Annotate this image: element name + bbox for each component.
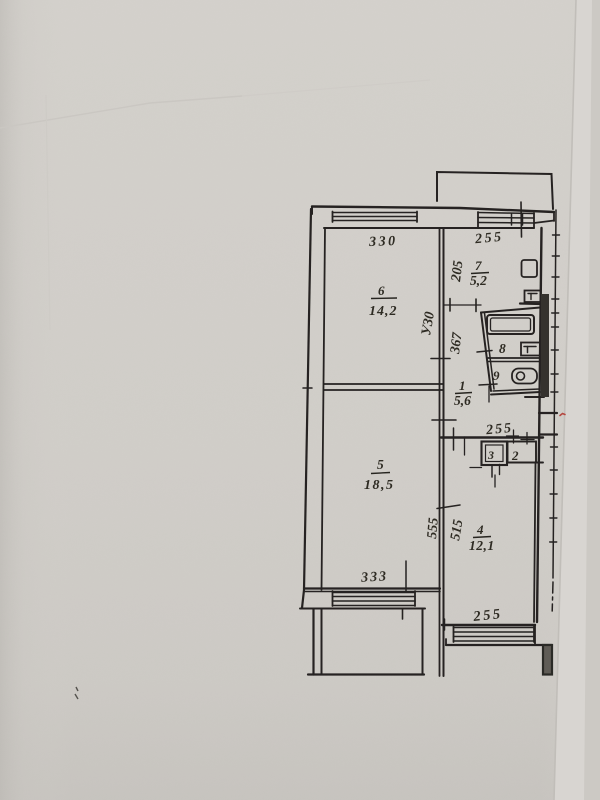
svg-text:4: 4: [476, 522, 484, 537]
svg-text:14,2: 14,2: [369, 304, 398, 319]
svg-text:9: 9: [493, 368, 500, 383]
svg-text:255: 255: [485, 421, 514, 438]
svg-text:205: 205: [449, 260, 467, 284]
svg-text:1: 1: [459, 378, 466, 393]
svg-text:255: 255: [474, 230, 505, 248]
svg-text:5,6: 5,6: [454, 393, 471, 408]
svg-text:12,1: 12,1: [469, 538, 495, 553]
svg-text:6: 6: [378, 283, 385, 298]
svg-text:555: 555: [425, 517, 442, 539]
svg-text:330: 330: [368, 234, 398, 250]
svg-text:3: 3: [487, 448, 494, 462]
svg-text:5,2: 5,2: [470, 273, 487, 288]
svg-text:5: 5: [377, 457, 384, 472]
svg-text:8: 8: [499, 341, 506, 356]
svg-text:18,5: 18,5: [364, 478, 395, 493]
svg-text:367: 367: [448, 331, 466, 356]
svg-text:2: 2: [511, 448, 519, 463]
svg-text:7: 7: [475, 258, 482, 273]
svg-text:333: 333: [360, 569, 389, 585]
svg-text:255: 255: [472, 606, 504, 625]
